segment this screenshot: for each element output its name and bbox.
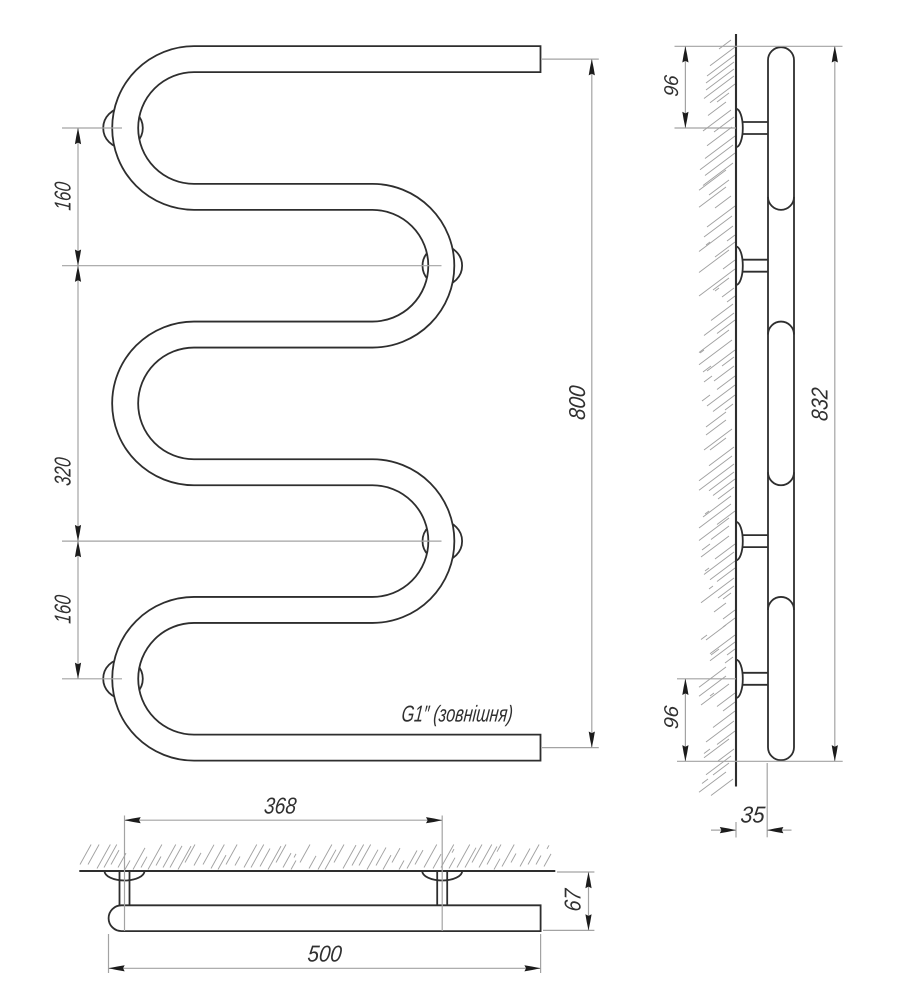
svg-text:160: 160 [50,594,76,625]
svg-text:500: 500 [306,941,343,967]
svg-text:67: 67 [560,887,586,913]
svg-text:35: 35 [739,802,766,828]
svg-text:96: 96 [661,704,683,730]
svg-text:G1″ (зовнішня): G1″ (зовнішня) [400,701,514,727]
svg-text:96: 96 [661,73,683,97]
svg-text:832: 832 [807,386,833,422]
svg-text:368: 368 [263,793,298,819]
svg-text:160: 160 [50,181,76,212]
svg-text:800: 800 [564,384,590,421]
svg-text:320: 320 [50,456,76,487]
